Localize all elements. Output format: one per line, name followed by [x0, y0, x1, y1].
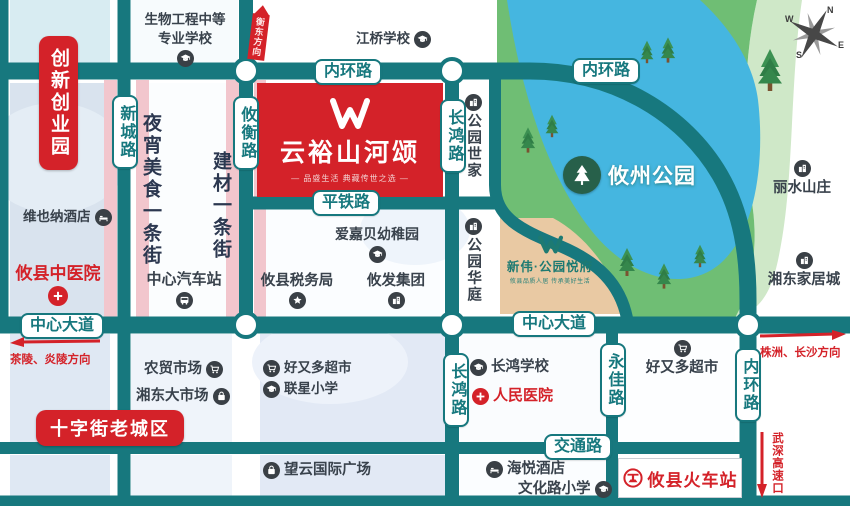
poi-youfa-label: 攸发集团: [367, 272, 425, 290]
bag-icon: [263, 462, 280, 479]
direction-chaling: 茶陵、炎陵方向: [10, 337, 102, 367]
poi-zhongyi-label: 攸县中医院: [16, 263, 101, 284]
poi-gongyuan-shijia: 公园世家: [464, 94, 482, 179]
project-second-name: 新伟·公园悦府: [507, 256, 593, 275]
street-jiancai: 建材一条街: [207, 151, 234, 261]
poi-tax-bureau: 攸县税务局: [253, 272, 341, 309]
poi-haiyue-hotel: 海悦酒店: [486, 460, 565, 478]
project-second-block: 新伟·公园悦府 攸县品质人居 传承美好生活: [498, 234, 602, 285]
poi-jiangqiao: 江桥学校: [356, 31, 431, 48]
project-main-logo-icon: [327, 97, 373, 131]
poi-xiangdong-market-label: 湘东大市场: [136, 387, 209, 405]
street-yexiao: 夜宵美食一条街: [137, 113, 164, 267]
park-label: 攸州公园: [563, 156, 696, 194]
hotel-icon: [486, 461, 503, 478]
school-icon: [414, 31, 431, 48]
bag-icon: [213, 388, 230, 405]
direction-hengdong-label: 衡东方向: [251, 16, 266, 57]
hotel-icon: [95, 209, 112, 226]
poi-nongmao-label: 农贸市场: [144, 360, 202, 378]
road-label-xincheng: 新城路: [112, 95, 138, 169]
poi-wangyun-label: 望云国际广场: [284, 461, 371, 479]
project-main-block: 云裕山河颂 — 品盛生活 典藏传世之选 —: [257, 83, 443, 197]
poi-bus-station-label: 中心汽车站: [146, 271, 221, 290]
school-icon: [369, 246, 386, 263]
park-name: 攸州公园: [608, 160, 696, 190]
poi-haoyouduo-right: 好又多超市: [636, 340, 728, 377]
poi-gongyuan-shijia-label: 公园世家: [464, 113, 482, 179]
poi-changhong-school: 长鸿学校: [470, 358, 549, 376]
poi-wenhua-school: 文化路小学: [518, 480, 612, 498]
star-icon: [289, 292, 306, 309]
building-icon: [465, 94, 482, 111]
area-chuangxin-tag: 创新创业园: [39, 36, 78, 170]
poi-lishui-label: 丽水山庄: [773, 179, 831, 197]
poi-bio-school-line2: 专业学校: [158, 31, 212, 48]
poi-xiangdong-home: 湘东家居城: [762, 252, 846, 289]
project-second-logo-icon: [536, 234, 564, 256]
road-label-pingtie: 平铁路: [312, 190, 380, 216]
down-arrow-icon: [757, 432, 767, 498]
road-label-neihuan-right: 内环路: [735, 348, 761, 422]
building-icon: [388, 292, 405, 309]
cart-icon: [674, 340, 691, 357]
school-icon: [470, 359, 487, 376]
poi-xiangdong-market: 湘东大市场: [136, 387, 230, 405]
poi-haiyue-label: 海悦酒店: [507, 460, 565, 478]
direction-chaling-label: 茶陵、炎陵方向: [10, 351, 102, 367]
road-label-youheng: 攸衡路: [233, 96, 259, 170]
direction-wushen-label: 武深高速口: [769, 432, 785, 495]
location-map: 云裕山河颂 — 品盛生活 典藏传世之选 — 新伟·公园悦府 攸县品质人居 传承美…: [0, 0, 850, 506]
project-main-tagline: — 品盛生活 典藏传世之选 —: [291, 173, 409, 184]
poi-aijiabei-label: 爱嘉贝幼稚园: [335, 226, 419, 244]
compass-n: N: [827, 5, 834, 15]
building-icon: [794, 160, 811, 177]
road-label-neihuan-top: 内环路: [314, 59, 382, 85]
road-label-neihuan-park: 内环路: [572, 58, 640, 84]
right-arrow-icon: [760, 330, 846, 340]
poi-haoyouduo-left-label: 好又多超市: [284, 360, 352, 377]
poi-renmin-label: 人民医院: [493, 387, 553, 406]
poi-lianxing-label: 联星小学: [284, 381, 338, 398]
poi-xiangdong-home-label: 湘东家居城: [768, 271, 841, 289]
poi-gongyuan-huating: 公园华庭: [464, 218, 482, 303]
poi-lianxing: 联星小学: [263, 381, 338, 398]
road-label-changhong-bottom: 长鸿路: [443, 353, 469, 427]
poi-zhongyi-hospital: 攸县中医院: [10, 263, 106, 306]
poi-renmin-hospital: 人民医院: [472, 387, 553, 406]
poi-gongyuan-huating-label: 公园华庭: [464, 237, 482, 303]
poi-jiangqiao-label: 江桥学校: [356, 31, 410, 48]
compass-e: E: [838, 40, 844, 50]
poi-changhong-school-label: 长鸿学校: [491, 358, 549, 376]
poi-bio-school-line1: 生物工程中等: [145, 12, 226, 29]
road-label-zhongxin-left: 中心大道: [20, 313, 104, 339]
poi-wangyun: 望云国际广场: [263, 461, 371, 479]
road-label-changhong-top: 长鸿路: [440, 99, 466, 173]
poi-vienna: 维也纳酒店: [23, 209, 112, 226]
compass-icon: [786, 6, 842, 62]
area-shizijie-tag: 十字街老城区: [36, 410, 184, 446]
school-icon: [177, 50, 194, 67]
hospital-cross-icon: [48, 286, 68, 306]
park-tree-icon: [563, 156, 601, 194]
direction-zhuzhou-label: 株洲、长沙方向: [760, 344, 846, 360]
poi-aijiabei: 爱嘉贝幼稚园: [325, 226, 429, 263]
poi-railway-station: 攸县火车站: [618, 458, 742, 498]
road-label-yongjia: 永佳路: [600, 343, 626, 417]
poi-railway-label: 攸县火车站: [648, 466, 738, 491]
cart-icon: [263, 360, 280, 377]
poi-tax-bureau-label: 攸县税务局: [261, 272, 334, 290]
poi-haoyouduo-right-label: 好又多超市: [646, 359, 719, 377]
school-icon: [595, 481, 612, 498]
poi-wenhua-label: 文化路小学: [518, 480, 591, 498]
building-icon: [465, 218, 482, 235]
project-second-tagline: 攸县品质人居 传承美好生活: [510, 276, 590, 285]
compass-w: W: [785, 14, 794, 24]
poi-bio-school: 生物工程中等 专业学校: [130, 12, 240, 67]
hospital-cross-icon: [472, 388, 489, 405]
compass-s: S: [796, 50, 802, 60]
cart-icon: [206, 361, 223, 378]
school-icon: [263, 381, 280, 398]
building-icon: [796, 252, 813, 269]
railway-icon: [623, 468, 643, 488]
direction-wushen: 武深高速口: [757, 432, 785, 498]
poi-bus-station: 中心汽车站: [134, 271, 234, 309]
poi-vienna-label: 维也纳酒店: [23, 209, 91, 226]
road-label-jiaotong: 交通路: [544, 434, 612, 460]
road-label-zhongxin-right: 中心大道: [512, 311, 596, 337]
project-main-name: 云裕山河颂: [280, 133, 420, 169]
poi-youfa-group: 攸发集团: [358, 272, 434, 309]
poi-lishui: 丽水山庄: [766, 160, 838, 197]
direction-zhuzhou: 株洲、长沙方向: [760, 330, 846, 360]
left-arrow-icon: [10, 337, 102, 347]
poi-nongmao-market: 农贸市场: [144, 360, 223, 378]
poi-haoyouduo-left: 好又多超市: [263, 360, 352, 377]
bus-icon: [176, 292, 193, 309]
